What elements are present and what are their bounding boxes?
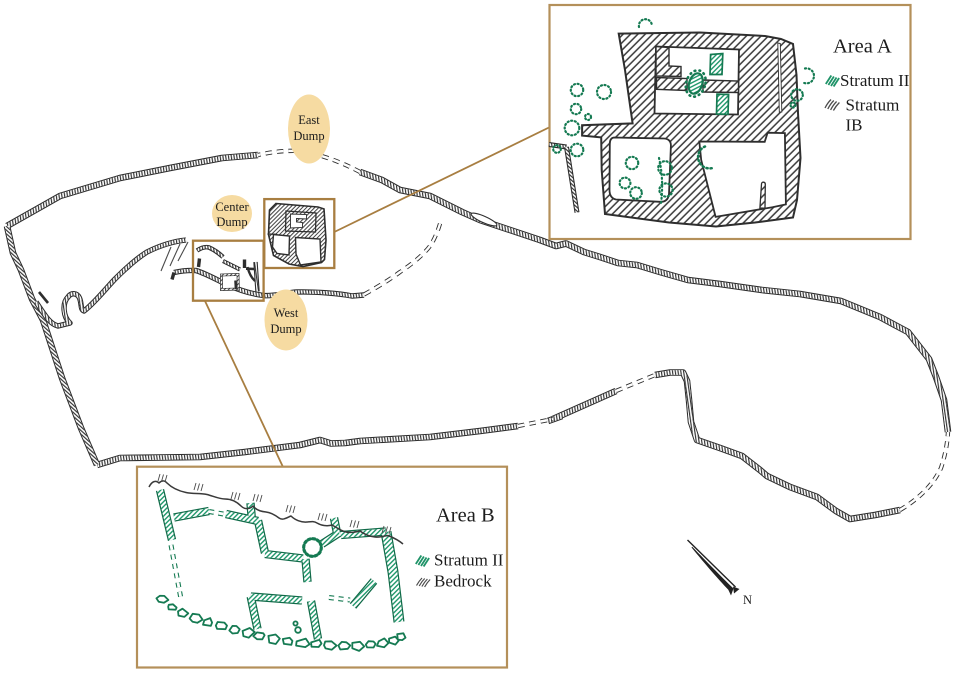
svg-text:Dump: Dump xyxy=(293,129,324,143)
svg-text:Area B: Area B xyxy=(436,505,495,527)
svg-text:Stratum II: Stratum II xyxy=(434,551,504,570)
svg-text:Bedrock: Bedrock xyxy=(434,572,492,591)
svg-text:Area A: Area A xyxy=(833,36,892,58)
svg-text:West: West xyxy=(274,306,299,320)
svg-text:Stratum II: Stratum II xyxy=(840,71,910,90)
svg-text:East: East xyxy=(298,113,320,127)
svg-text:N: N xyxy=(743,593,752,607)
svg-text:Center: Center xyxy=(215,200,249,214)
svg-text:Stratum: Stratum xyxy=(846,96,900,115)
svg-text:Dump: Dump xyxy=(216,215,247,229)
svg-text:IB: IB xyxy=(846,116,863,135)
svg-text:Dump: Dump xyxy=(270,322,301,336)
